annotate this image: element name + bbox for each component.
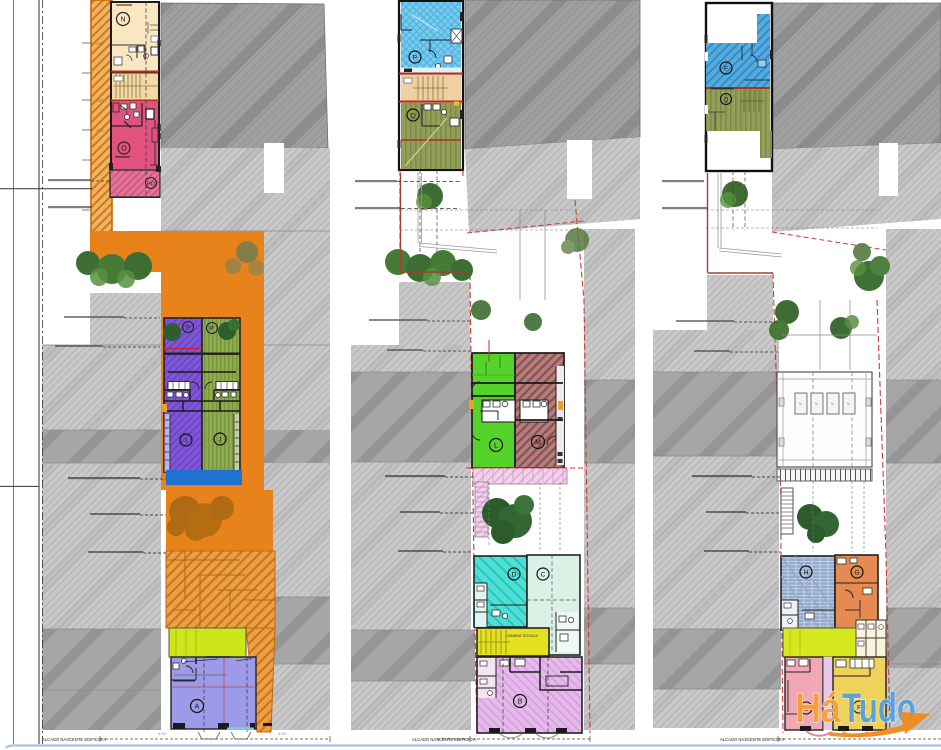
svg-text:H: H xyxy=(804,570,809,577)
svg-text:V: V xyxy=(799,401,802,406)
svg-text:V: V xyxy=(847,401,850,406)
svg-text:I: I xyxy=(185,438,187,445)
svg-text:4.00: 4.00 xyxy=(278,731,287,736)
svg-text:PO: PO xyxy=(147,182,156,188)
svg-text:L: L xyxy=(494,443,498,450)
svg-text:150: 150 xyxy=(96,128,104,133)
svg-text:B: B xyxy=(518,699,523,706)
svg-text:P: P xyxy=(186,326,190,332)
svg-text:J: J xyxy=(218,437,221,444)
svg-text:C: C xyxy=(541,572,546,579)
svg-text:P': P' xyxy=(209,327,214,333)
svg-text:V: V xyxy=(815,401,818,406)
svg-text:Há: Há xyxy=(795,684,842,731)
svg-text:Q: Q xyxy=(724,98,729,104)
svg-text:CAMARA TECNICA: CAMARA TECNICA xyxy=(506,634,538,638)
svg-text:A: A xyxy=(195,704,200,711)
svg-text:O: O xyxy=(121,146,127,153)
svg-text:150: 150 xyxy=(96,98,104,103)
svg-text:150: 150 xyxy=(96,41,104,46)
svg-text:ALCADO NASCENTE EDIFICIO A: ALCADO NASCENTE EDIFICIO A xyxy=(412,737,476,742)
svg-text:G: G xyxy=(854,570,859,577)
svg-text:ALCADO NASCENTE EDIFICIO A: ALCADO NASCENTE EDIFICIO A xyxy=(42,737,106,742)
svg-text:F: F xyxy=(724,66,728,73)
svg-text:ALCADO NASCENTE EDIFICIO A: ALCADO NASCENTE EDIFICIO A xyxy=(720,737,784,742)
svg-text:M: M xyxy=(535,440,541,447)
svg-text:D: D xyxy=(512,572,517,579)
svg-text:V: V xyxy=(831,401,834,406)
svg-text:P: P xyxy=(413,55,417,62)
svg-text:N: N xyxy=(120,17,125,24)
svg-text:Q: Q xyxy=(410,113,415,120)
svg-text:4.00: 4.00 xyxy=(158,731,167,736)
